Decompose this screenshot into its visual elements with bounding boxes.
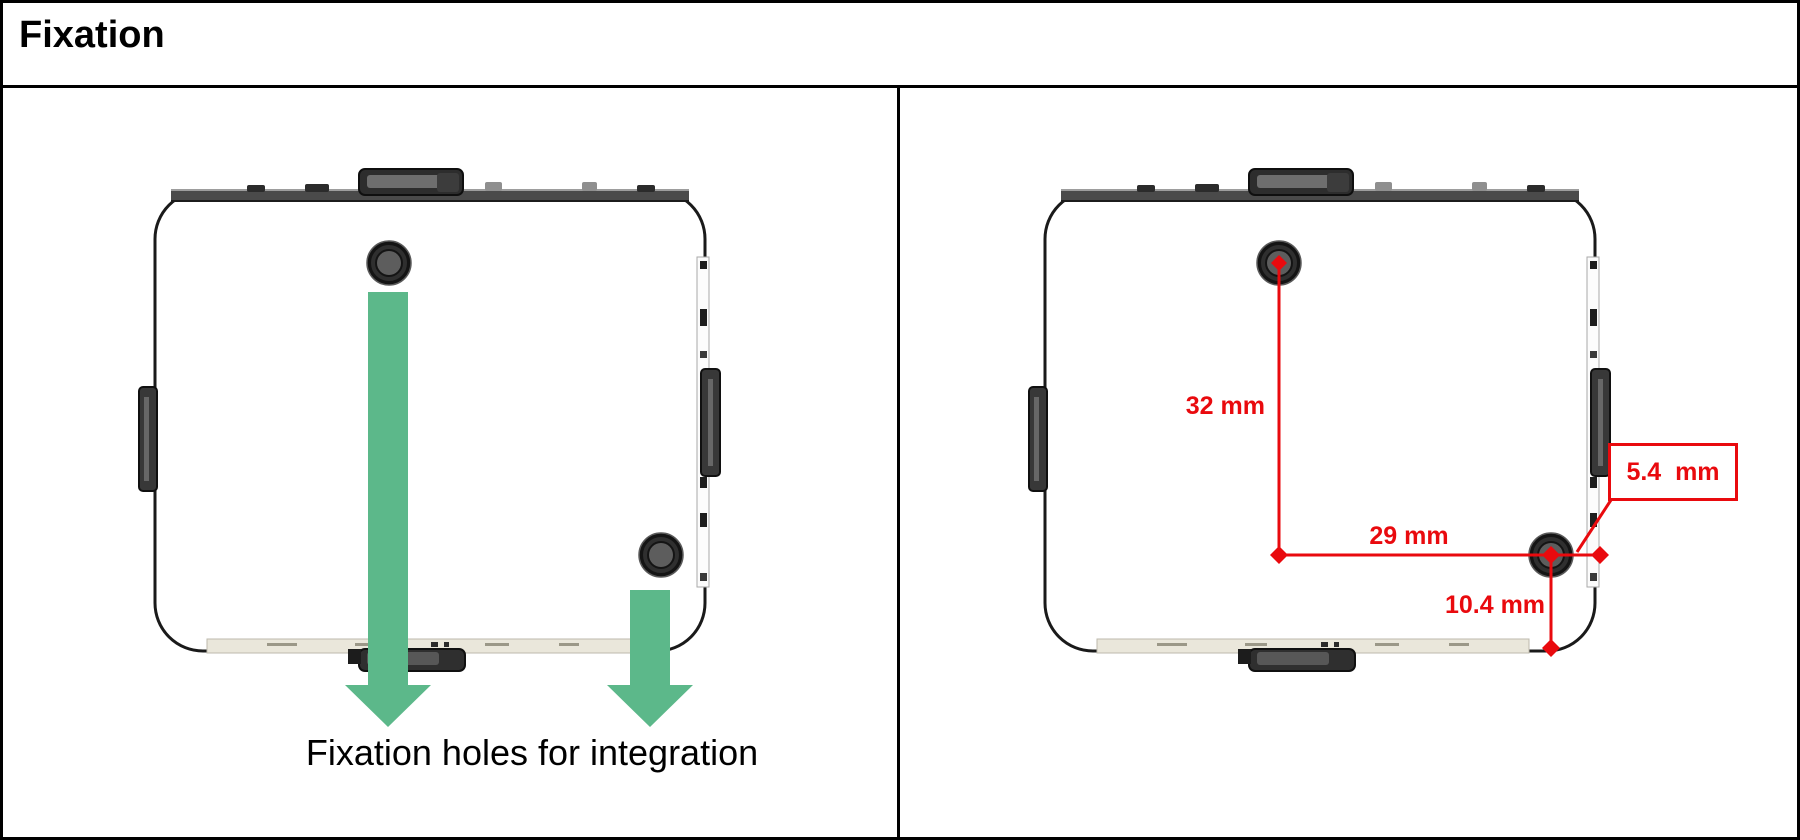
fixation-holes-caption: Fixation holes for integration [232,733,832,773]
page-title: Fixation [3,3,165,57]
slide: Fixation [0,0,1800,840]
slide-content: Fixation holes for integration 32 mm 29 … [3,88,1797,837]
dimension-label-10-4mm: 10.4 mm [1409,590,1581,620]
slide-header: Fixation [3,3,1797,88]
diagram-canvas [3,88,1797,837]
dimension-callout-box: 5.4 mm [1608,443,1738,501]
dimension-label-29mm: 29 mm [1329,521,1489,551]
dimension-label-5-4mm: 5.4 mm [1626,457,1719,487]
dimension-label-32mm: 32 mm [1123,391,1265,421]
